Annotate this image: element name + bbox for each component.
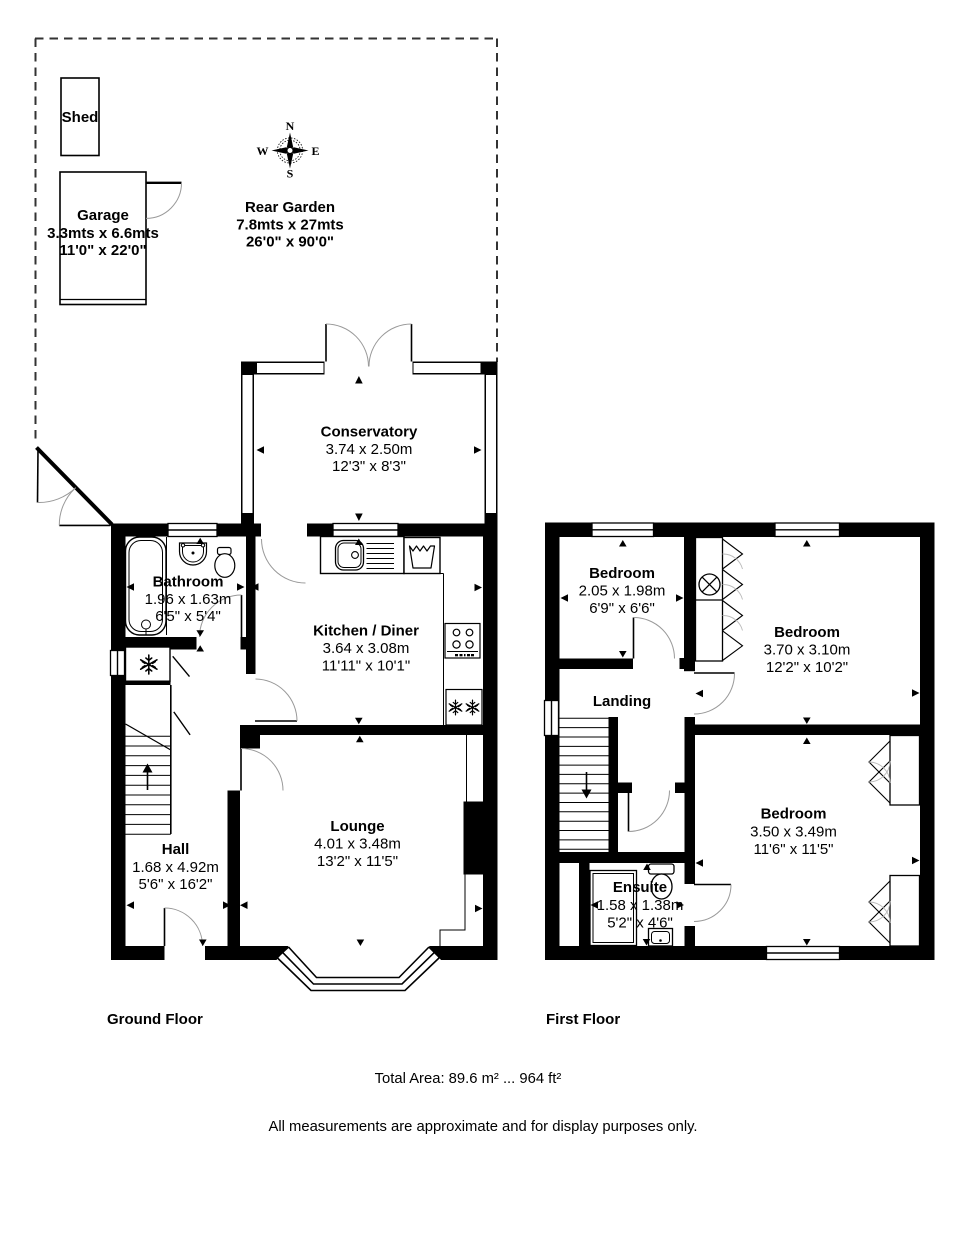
svg-text:E: E [312, 144, 320, 158]
svg-text:W: W [257, 144, 269, 158]
svg-text:1.58 x 1.38m: 1.58 x 1.38m [597, 897, 684, 914]
svg-text:11'0" x 22'0": 11'0" x 22'0" [59, 242, 146, 259]
svg-text:Rear Garden: Rear Garden [245, 199, 335, 216]
svg-text:3.3mts x 6.6mts: 3.3mts x 6.6mts [47, 225, 159, 242]
svg-text:Hall: Hall [162, 841, 190, 858]
svg-text:All measurements are approxima: All measurements are approximate and for… [268, 1119, 697, 1135]
svg-text:3.64 x 3.08m: 3.64 x 3.08m [323, 640, 410, 657]
svg-text:12'3" x 8'3": 12'3" x 8'3" [332, 458, 406, 475]
svg-text:11'6" x 11'5": 11'6" x 11'5" [753, 841, 833, 858]
svg-text:Bathroom: Bathroom [153, 574, 224, 591]
svg-text:6'5" x 5'4": 6'5" x 5'4" [155, 608, 221, 625]
svg-text:First Floor: First Floor [546, 1011, 620, 1028]
svg-text:Bedroom: Bedroom [774, 624, 840, 641]
svg-text:5'2" x 4'6": 5'2" x 4'6" [607, 915, 673, 932]
svg-text:Landing: Landing [593, 693, 651, 710]
svg-text:Total Area: 89.6 m² ... 964 ft: Total Area: 89.6 m² ... 964 ft² [375, 1071, 562, 1087]
svg-text:Bedroom: Bedroom [761, 806, 827, 823]
svg-text:Kitchen / Diner: Kitchen / Diner [313, 623, 419, 640]
svg-text:Ground Floor: Ground Floor [107, 1011, 203, 1028]
svg-text:N: N [286, 119, 295, 133]
svg-text:Conservatory: Conservatory [321, 424, 418, 441]
svg-text:7.8mts x 27mts: 7.8mts x 27mts [236, 217, 344, 234]
svg-text:12'2" x 10'2": 12'2" x 10'2" [766, 659, 848, 676]
svg-text:5'6" x 16'2": 5'6" x 16'2" [139, 876, 213, 893]
svg-text:Bedroom: Bedroom [589, 565, 655, 582]
svg-text:Lounge: Lounge [330, 818, 384, 835]
svg-text:1.96 x 1.63m: 1.96 x 1.63m [145, 591, 232, 608]
svg-text:Shed: Shed [62, 109, 99, 126]
svg-text:Garage: Garage [77, 207, 129, 224]
svg-text:Ensuite: Ensuite [613, 879, 667, 896]
svg-text:S: S [287, 167, 294, 181]
svg-text:3.70 x 3.10m: 3.70 x 3.10m [764, 642, 851, 659]
svg-text:4.01 x 3.48m: 4.01 x 3.48m [314, 836, 401, 853]
svg-text:6'9" x 6'6": 6'9" x 6'6" [589, 600, 655, 617]
svg-text:3.50 x 3.49m: 3.50 x 3.49m [750, 824, 837, 841]
svg-text:3.74 x 2.50m: 3.74 x 2.50m [326, 441, 413, 458]
svg-text:2.05 x 1.98m: 2.05 x 1.98m [579, 583, 666, 600]
svg-text:13'2" x 11'5": 13'2" x 11'5" [317, 853, 398, 870]
svg-text:26'0" x 90'0": 26'0" x 90'0" [246, 234, 334, 251]
svg-text:11'11" x 10'1": 11'11" x 10'1" [322, 658, 410, 675]
svg-text:1.68 x 4.92m: 1.68 x 4.92m [132, 859, 219, 876]
